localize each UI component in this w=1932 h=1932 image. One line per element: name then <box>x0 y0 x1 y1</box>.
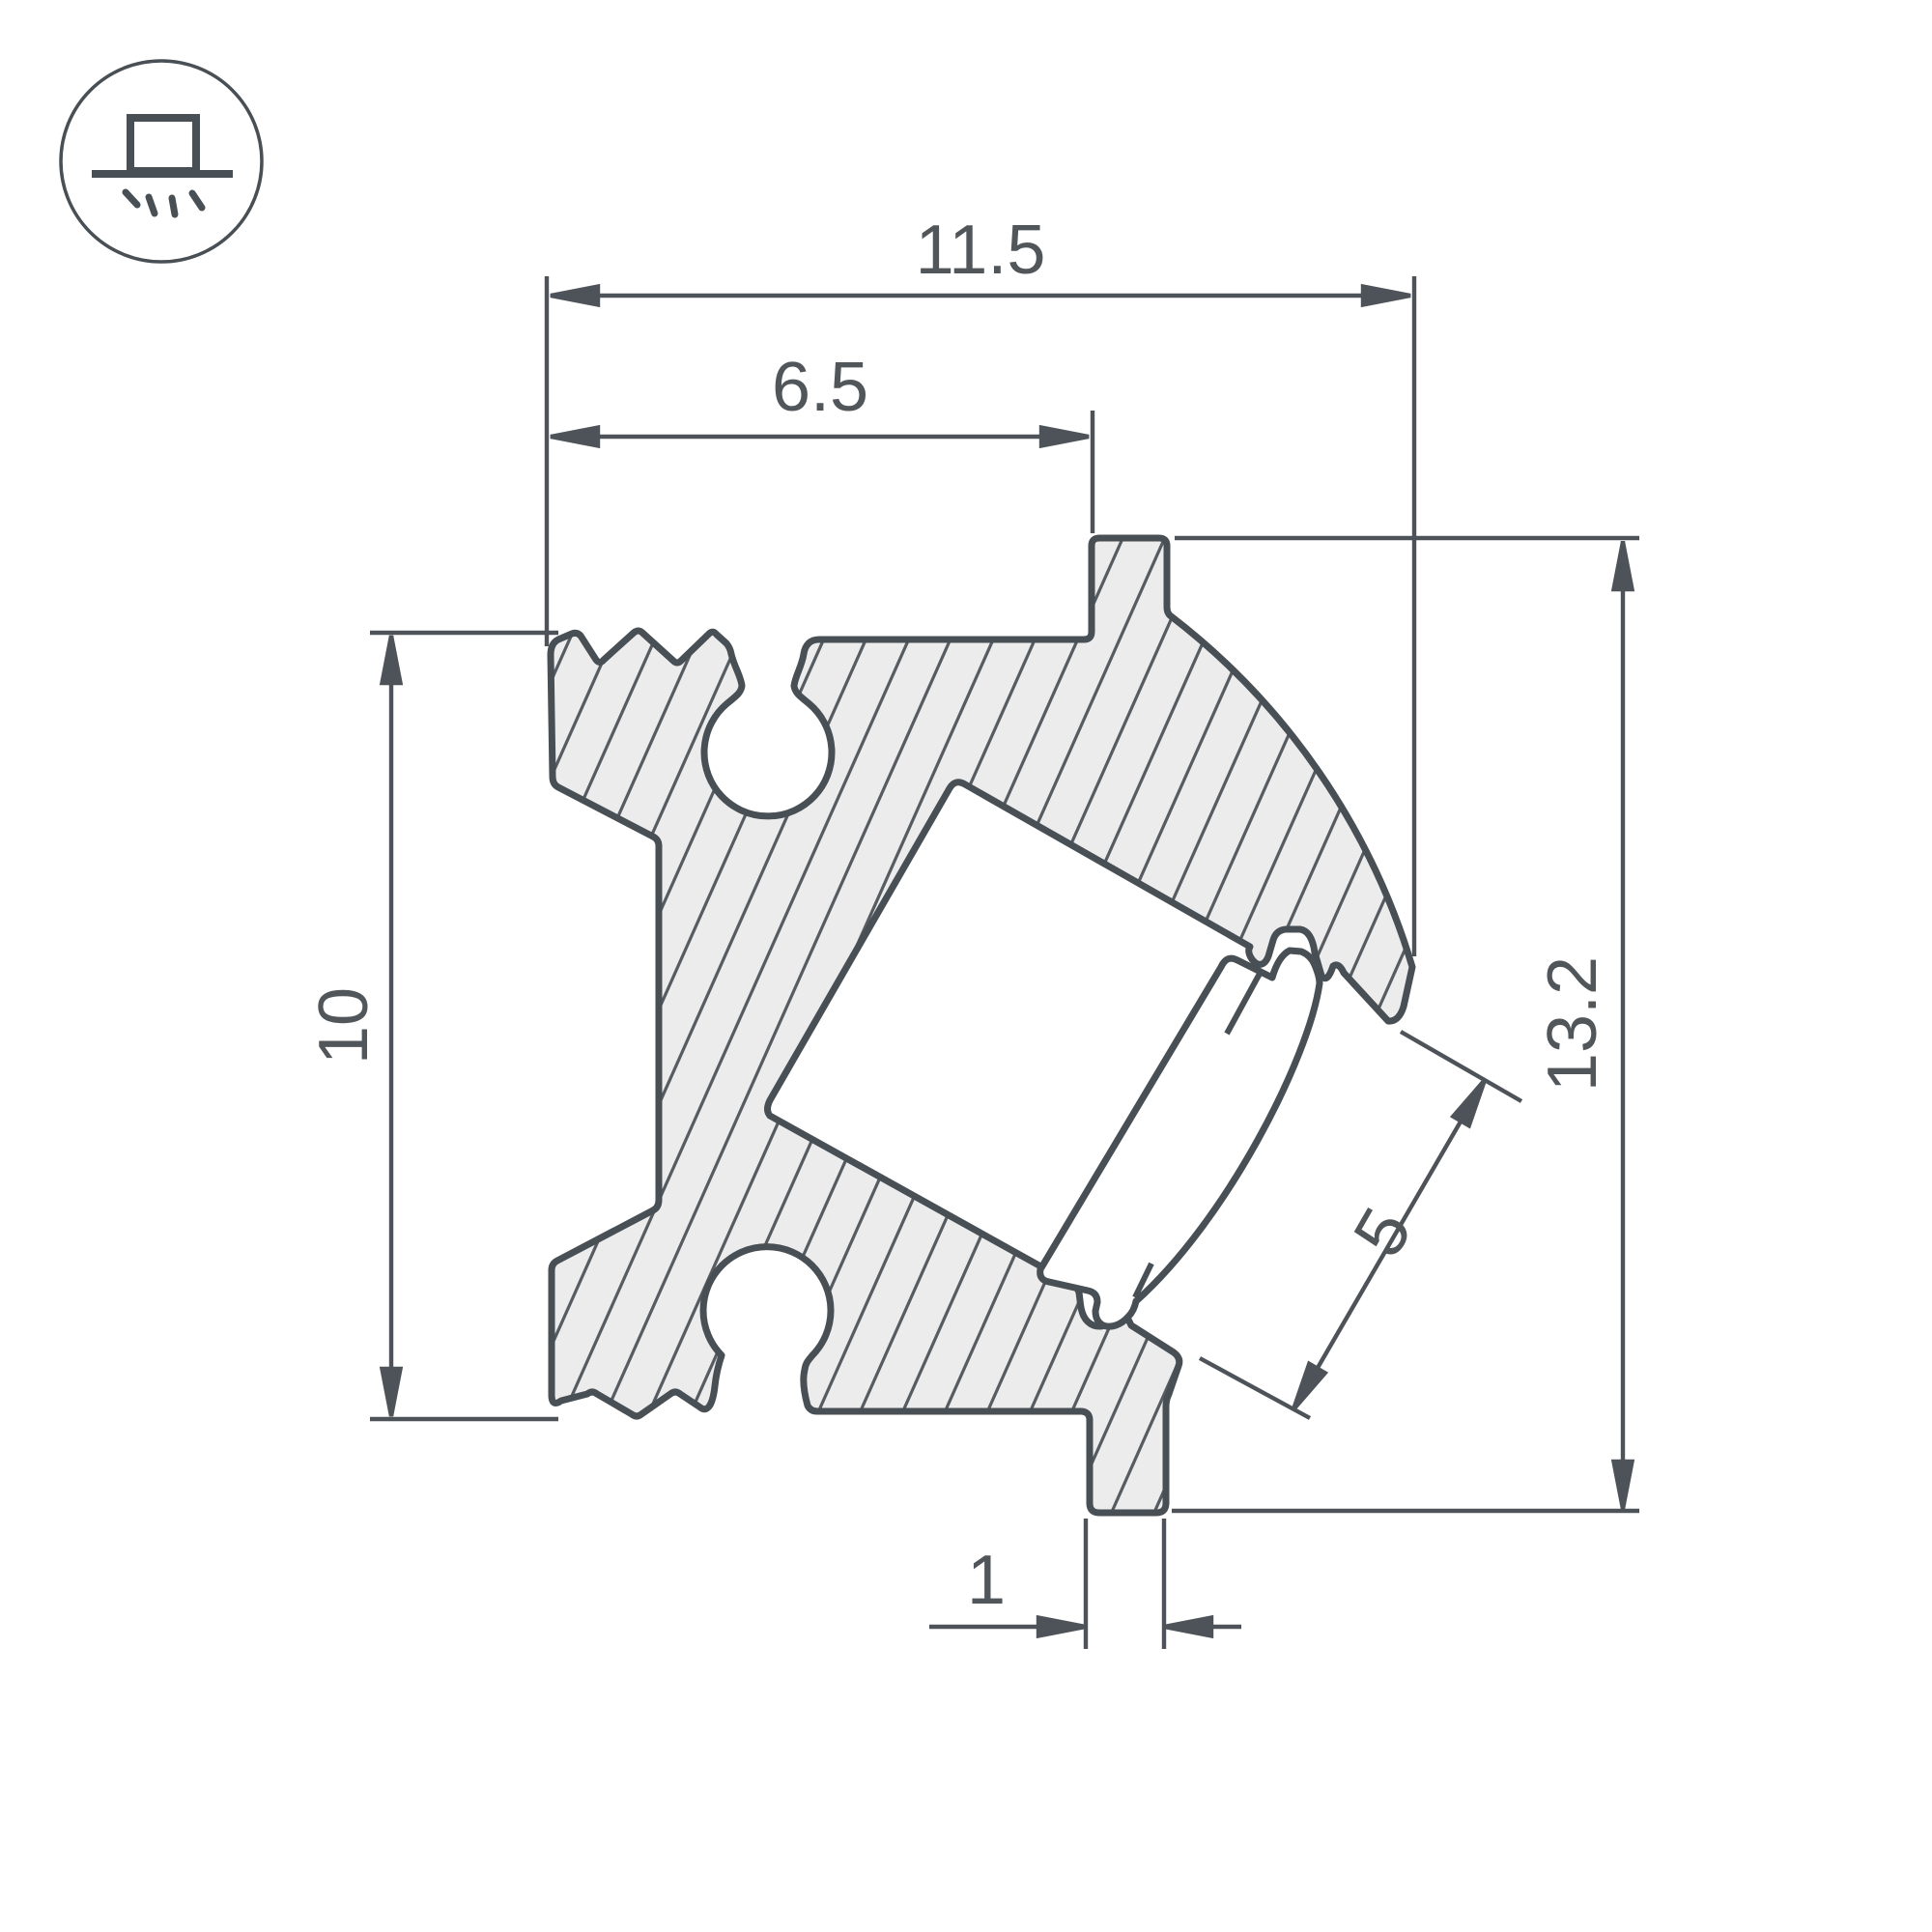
svg-text:1: 1 <box>967 1542 1006 1619</box>
svg-text:13.2: 13.2 <box>1534 956 1611 1092</box>
svg-text:10: 10 <box>305 987 383 1065</box>
svg-text:6.5: 6.5 <box>772 349 868 426</box>
svg-text:11.5: 11.5 <box>916 212 1046 289</box>
